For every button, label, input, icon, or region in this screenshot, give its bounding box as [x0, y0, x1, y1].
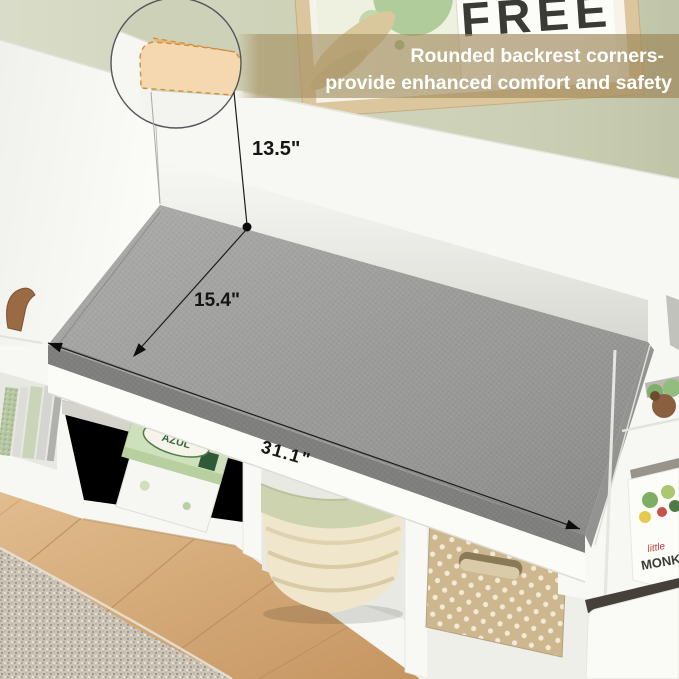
headline-band: Rounded backrest corners- provide enhanc…: [236, 34, 679, 98]
picture-book: little MONKE: [628, 468, 679, 592]
headline-line1: Rounded backrest corners-: [410, 45, 664, 67]
product-annotation-image: FREE: [0, 0, 679, 679]
dimension-label-backrest-height: 13.5": [252, 138, 300, 160]
headline-line2: provide enhanced comfort and safety: [325, 72, 672, 94]
dimension-label-seat-depth: 15.4": [194, 290, 240, 311]
scene-canvas: FREE: [0, 0, 679, 679]
dimension-dot: [243, 223, 252, 232]
